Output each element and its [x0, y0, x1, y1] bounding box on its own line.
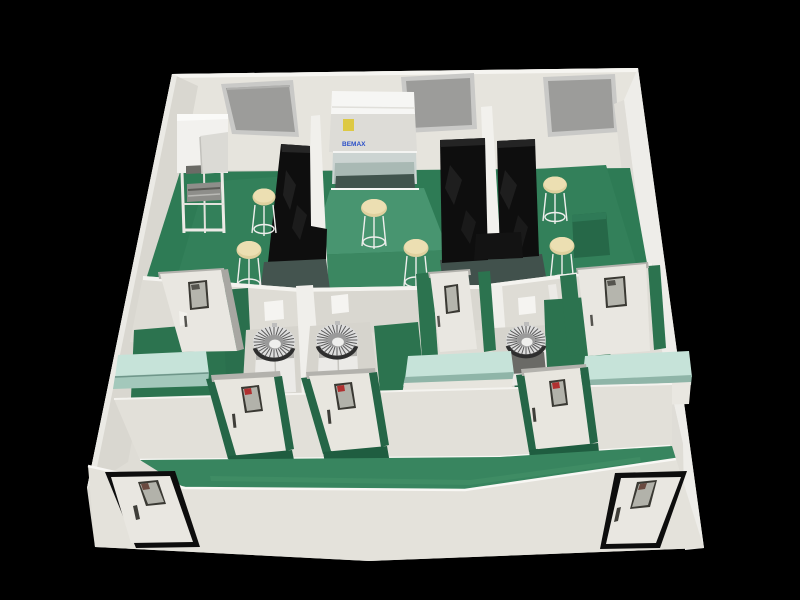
- svg-text:BEMAX: BEMAX: [342, 141, 366, 148]
